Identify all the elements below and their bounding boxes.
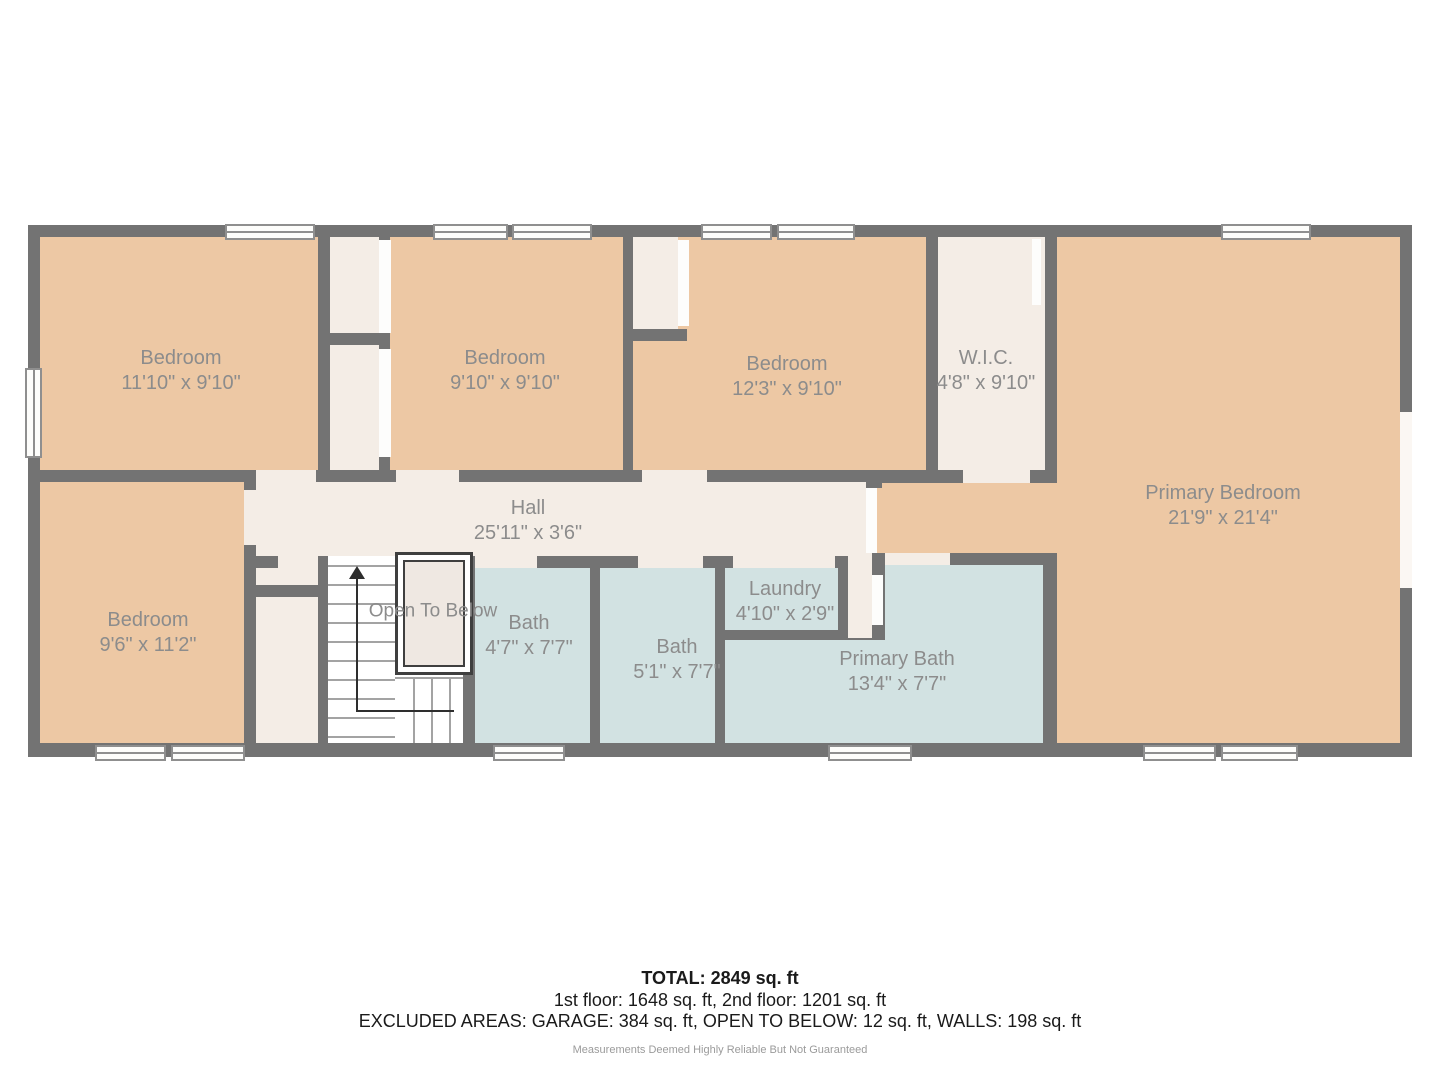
label-open-to-below: Open To Below (369, 599, 498, 624)
summary-excluded: EXCLUDED AREAS: GARAGE: 384 sq. ft, OPEN… (0, 1011, 1440, 1032)
window-bedroom-2-top-b (512, 224, 592, 240)
summary-disclaimer: Measurements Deemed Highly Reliable But … (0, 1044, 1440, 1056)
room-primary-bath-upper (885, 565, 1043, 640)
closet-strip (256, 482, 318, 743)
closet-b (633, 237, 678, 329)
hall-bottom-wall-piece (244, 556, 278, 568)
window-bedroom-1-top (225, 224, 315, 240)
window-bedroom-3-top-b (777, 224, 855, 240)
door-gap-bath-1 (475, 556, 537, 568)
room-name: Primary Bedroom (1145, 481, 1301, 506)
label-hall: Hall 25'11" x 3'6" (474, 496, 582, 546)
stair-tread (328, 641, 395, 643)
window-primary-bedroom-top (1221, 224, 1311, 240)
label-bedroom-4: Bedroom 9'6" x 11'2" (99, 608, 196, 658)
closet-a-bottom (330, 345, 379, 470)
closet-strip-divider-wall (256, 585, 318, 597)
stairs-up-arrow-stem (356, 578, 358, 712)
stair-tread (328, 698, 395, 700)
nook-door (872, 575, 883, 625)
room-primary-bedroom-band (877, 483, 1057, 553)
room-name: Bedroom (450, 346, 560, 371)
hall-right-wall-stub (866, 470, 882, 488)
room-dims: 5'1" x 7'7" (633, 660, 720, 685)
window-bedroom-4-bottom-a (95, 745, 166, 761)
door-gap-bedroom-1 (256, 470, 316, 483)
window-primary-bath-bottom (828, 745, 912, 761)
room-name: Bath (633, 635, 720, 660)
label-bedroom-1: Bedroom 11'10" x 9'10" (121, 346, 240, 396)
room-dims: 9'10" x 9'10" (450, 371, 560, 396)
closet-a-top (330, 237, 379, 333)
label-laundry: Laundry 4'10" x 2'9" (736, 577, 835, 627)
room-dims: 12'3" x 9'10" (732, 377, 842, 402)
window-bedroom-2-top-a (433, 224, 508, 240)
label-primary-bath: Primary Bath 13'4" x 7'7" (839, 647, 955, 697)
room-name: Bedroom (121, 346, 240, 371)
label-bedroom-3: Bedroom 12'3" x 9'10" (732, 352, 842, 402)
room-dims: 4'7" x 7'7" (485, 636, 572, 661)
window-bath-1-bottom (493, 745, 565, 761)
door-gap-primary-bath (885, 553, 950, 565)
floor-plan-page: Bedroom 11'10" x 9'10" Bedroom 9'10" x 9… (0, 0, 1440, 1080)
stairs-up-arrow-head (349, 566, 365, 579)
door-gap-bedroom-4 (244, 490, 256, 545)
window-bedroom-1-left (25, 368, 42, 458)
closet-a-top-door (379, 240, 391, 333)
room-name: Hall (474, 496, 582, 521)
label-wic: W.I.C. 4'8" x 9'10" (937, 346, 1036, 396)
room-name: Bath (485, 611, 572, 636)
room-dims: 4'8" x 9'10" (937, 371, 1036, 396)
room-name: Bedroom (99, 608, 196, 633)
window-bedroom-4-bottom-b (171, 745, 245, 761)
room-name: W.I.C. (937, 346, 1036, 371)
wic-door (1032, 239, 1041, 305)
room-dims: 9'6" x 11'2" (99, 633, 196, 658)
room-name: Bedroom (732, 352, 842, 377)
room-dims: 25'11" x 3'6" (474, 521, 582, 546)
room-name: Laundry (736, 577, 835, 602)
stair-tread (395, 677, 463, 679)
opening-primary-bedroom-right (1400, 412, 1412, 588)
window-primary-bedroom-bottom-a (1143, 745, 1216, 761)
stair-tread (328, 679, 395, 681)
label-bath-2: Bath 5'1" x 7'7" (633, 635, 720, 685)
room-dims: 11'10" x 9'10" (121, 371, 240, 396)
room-name: Primary Bath (839, 647, 955, 672)
room-dims: 21'9" x 21'4" (1145, 506, 1301, 531)
window-bedroom-3-top-a (701, 224, 772, 240)
door-gap-wic (963, 470, 1030, 483)
label-primary-bedroom: Primary Bedroom 21'9" x 21'4" (1145, 481, 1301, 531)
closet-b-wall (623, 329, 687, 341)
closet-a-bottom-door (379, 349, 391, 457)
door-gap-bath-2 (638, 556, 703, 568)
label-bedroom-2: Bedroom 9'10" x 9'10" (450, 346, 560, 396)
stair-tread (328, 660, 395, 662)
primary-bedroom-door (866, 488, 877, 553)
window-primary-bedroom-bottom-b (1221, 745, 1298, 761)
hall-nook (848, 556, 872, 638)
room-name: Open To Below (369, 599, 498, 624)
stair-tread (328, 717, 395, 719)
stairs-up-arrow-base (356, 710, 454, 712)
room-dims: 13'4" x 7'7" (839, 672, 955, 697)
stair-tread (328, 584, 395, 586)
room-dims: 4'10" x 2'9" (736, 602, 835, 627)
door-gap-bedroom-2 (396, 470, 459, 483)
stair-tread (328, 736, 395, 738)
door-gap-laundry (733, 556, 835, 568)
closet-b-door (678, 240, 689, 326)
door-gap-bedroom-3 (642, 470, 707, 483)
summary-floors: 1st floor: 1648 sq. ft, 2nd floor: 1201 … (0, 990, 1440, 1011)
label-bath-1: Bath 4'7" x 7'7" (485, 611, 572, 661)
summary-total: TOTAL: 2849 sq. ft (0, 968, 1440, 989)
